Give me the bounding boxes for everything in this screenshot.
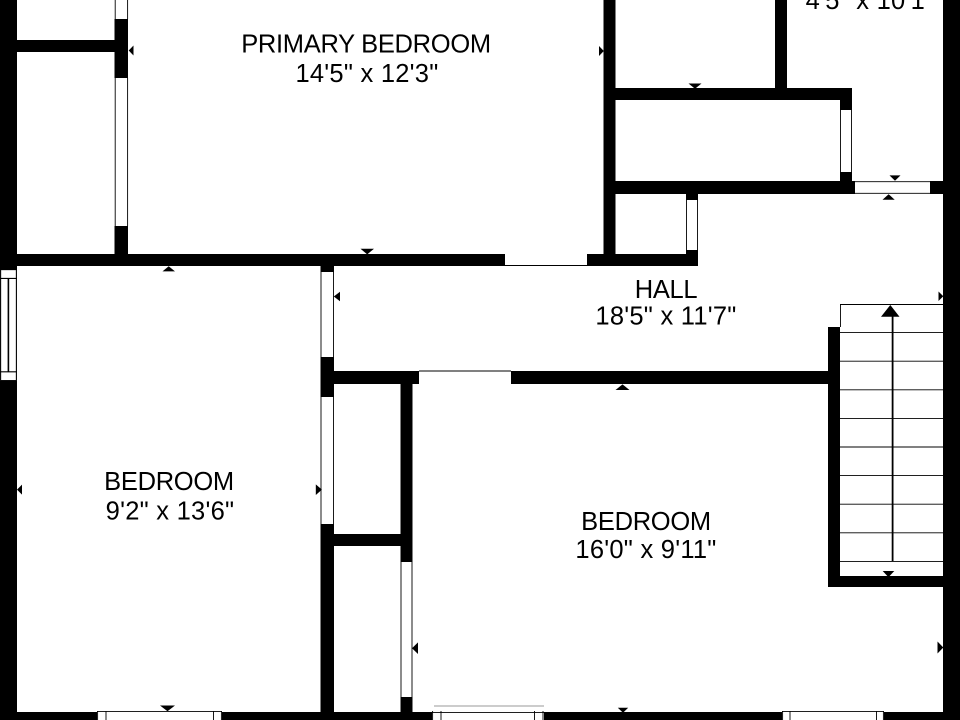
svg-text:HALL: HALL	[635, 276, 698, 304]
svg-text:BEDROOM: BEDROOM	[581, 508, 711, 536]
svg-text:9'2" x 13'6": 9'2" x 13'6"	[106, 497, 235, 525]
svg-text:16'0" x 9'11": 16'0" x 9'11"	[575, 536, 716, 564]
svg-text:4'5" x 10'1": 4'5" x 10'1"	[806, 0, 935, 15]
svg-text:PRIMARY BEDROOM: PRIMARY BEDROOM	[241, 30, 491, 58]
svg-text:BEDROOM: BEDROOM	[104, 468, 234, 496]
svg-text:18'5" x 11'7": 18'5" x 11'7"	[595, 303, 736, 331]
svg-text:14'5" x 12'3": 14'5" x 12'3"	[295, 60, 438, 88]
